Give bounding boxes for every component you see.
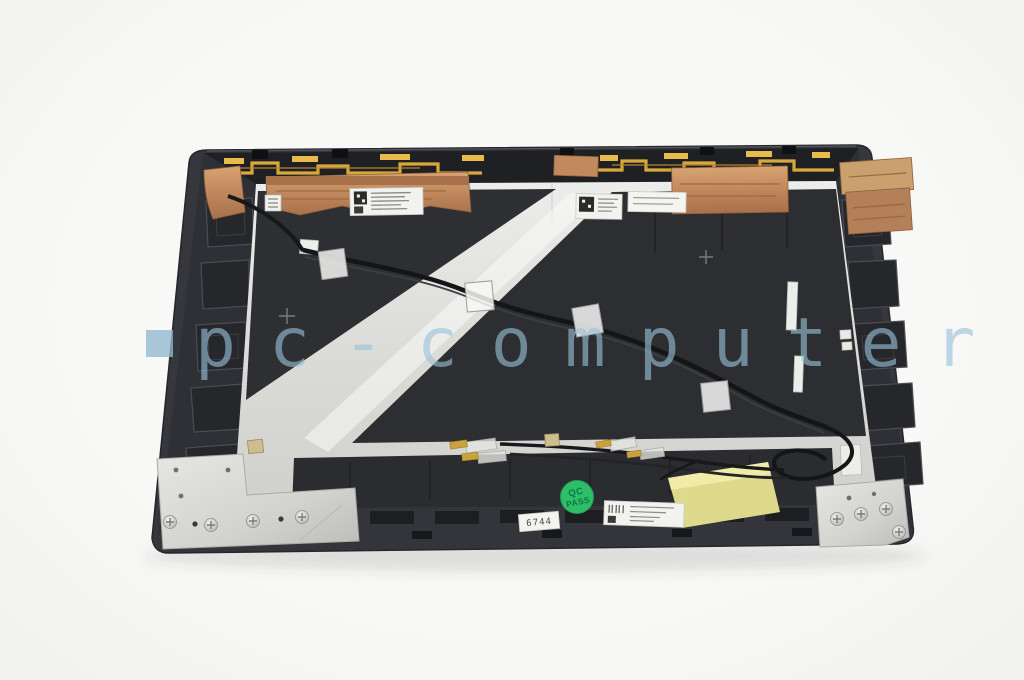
qc-pass-sticker: QC PASS <box>561 481 594 514</box>
product-photo-stage: QC PASS 6744 pc-computer <box>0 0 1024 680</box>
part-label-qr-center <box>576 194 622 220</box>
part-label-tiny-grid <box>265 195 281 211</box>
copper-tape-top-left <box>204 166 245 219</box>
copper-tape-corner <box>840 158 917 235</box>
hinge-bracket-right <box>816 479 909 547</box>
copper-tape-top-right <box>672 166 789 214</box>
part-label-qr-left <box>350 187 423 215</box>
copper-tape-small <box>554 155 599 177</box>
laptop-cover-photo: QC PASS 6744 <box>0 0 1024 680</box>
bottom-barcode-label <box>604 501 685 528</box>
part-label-plain <box>628 191 686 212</box>
inventory-sticker: 6744 <box>518 511 559 531</box>
